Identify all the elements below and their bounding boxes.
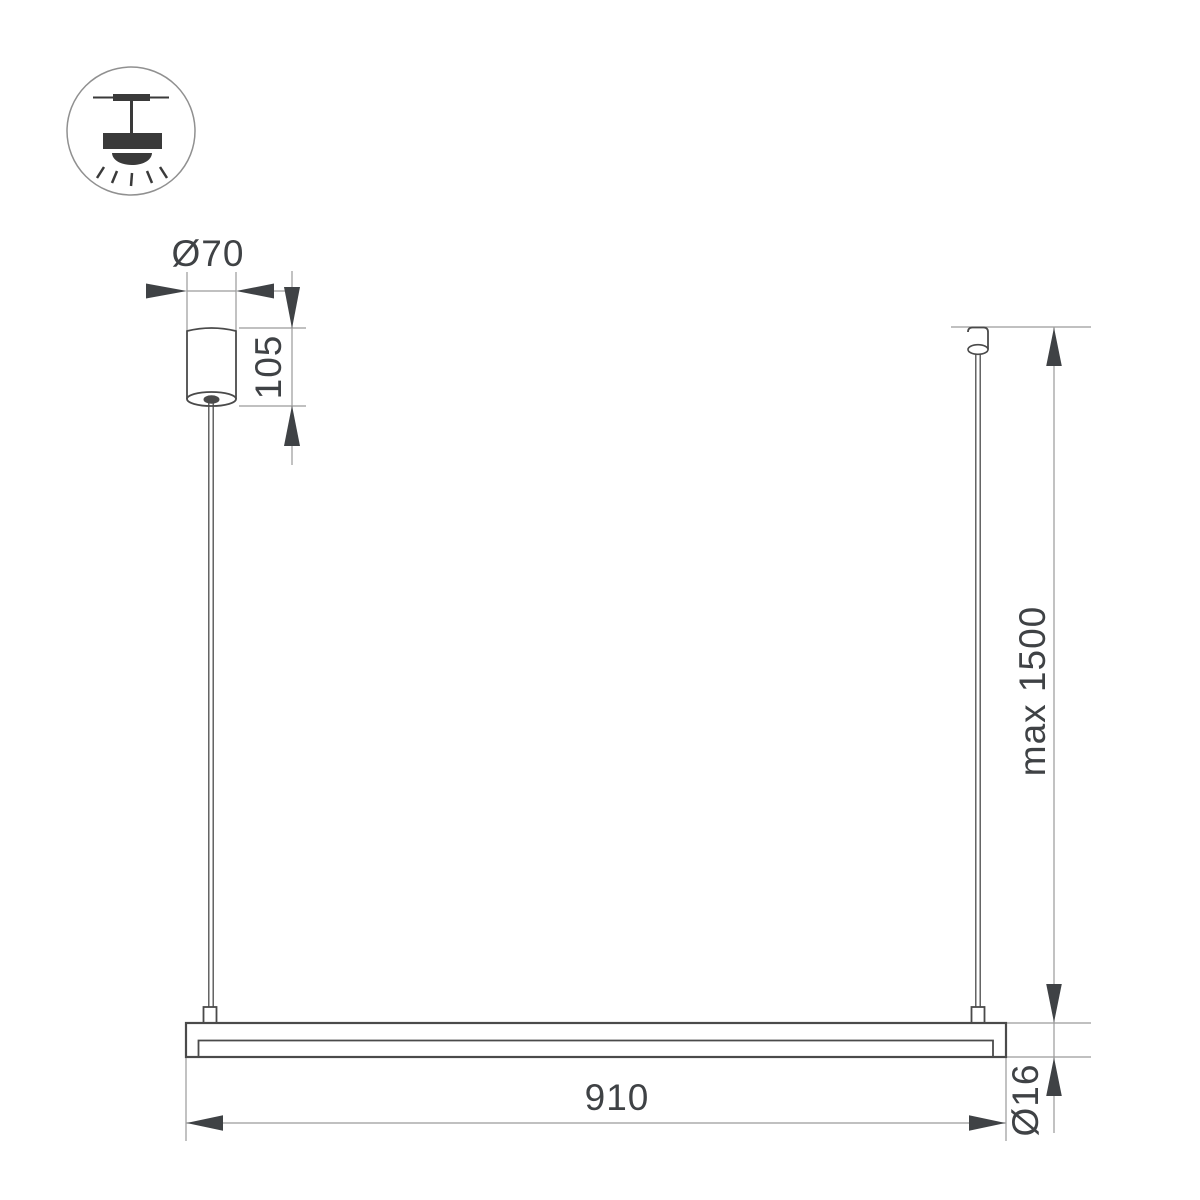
technical-drawing-page: Ø70 105 max 1500 910 Ø16	[0, 0, 1200, 1200]
light-bar	[186, 1023, 1006, 1057]
dimension-lines	[186, 271, 1091, 1141]
arrow-bar-length-left	[187, 1115, 224, 1131]
cable-connector-left	[204, 1007, 217, 1023]
suspension-cable-right	[976, 354, 980, 1008]
arrow-canopy-diameter-right	[236, 284, 274, 299]
label-canopy-diameter: Ø70	[172, 233, 245, 274]
dimension-labels: Ø70 105 max 1500 910 Ø16	[172, 233, 1053, 1137]
gripper-bottom-rim	[968, 345, 988, 355]
label-suspension-max-length: max 1500	[1012, 606, 1053, 777]
suspension-cable-left	[209, 403, 213, 1008]
cable-connector-right	[972, 1007, 985, 1023]
arrow-bar-length-right	[969, 1115, 1006, 1131]
icon-mount-plate	[113, 94, 150, 101]
dimension-arrows	[146, 284, 1062, 1131]
arrow-suspension-top	[1046, 328, 1062, 367]
technical-drawing-canvas: Ø70 105 max 1500 910 Ø16	[0, 0, 1200, 1200]
label-bar-diameter: Ø16	[1005, 1064, 1046, 1137]
canopy-cable-gland	[204, 395, 220, 403]
canopy-body	[187, 328, 236, 399]
ceiling-pendant-mount-icon	[67, 67, 195, 195]
arrow-canopy-height-top	[284, 287, 300, 329]
arrow-canopy-diameter-left	[146, 284, 187, 299]
cable-gripper-right	[968, 328, 988, 355]
ceiling-canopy	[187, 328, 236, 406]
arrow-canopy-height-bottom	[284, 406, 300, 447]
arrow-bar-diameter	[1046, 1058, 1062, 1097]
label-bar-length: 910	[585, 1077, 650, 1118]
icon-lamp-body	[103, 133, 162, 149]
arrow-suspension-bottom	[1046, 984, 1062, 1023]
label-canopy-height: 105	[248, 335, 289, 400]
